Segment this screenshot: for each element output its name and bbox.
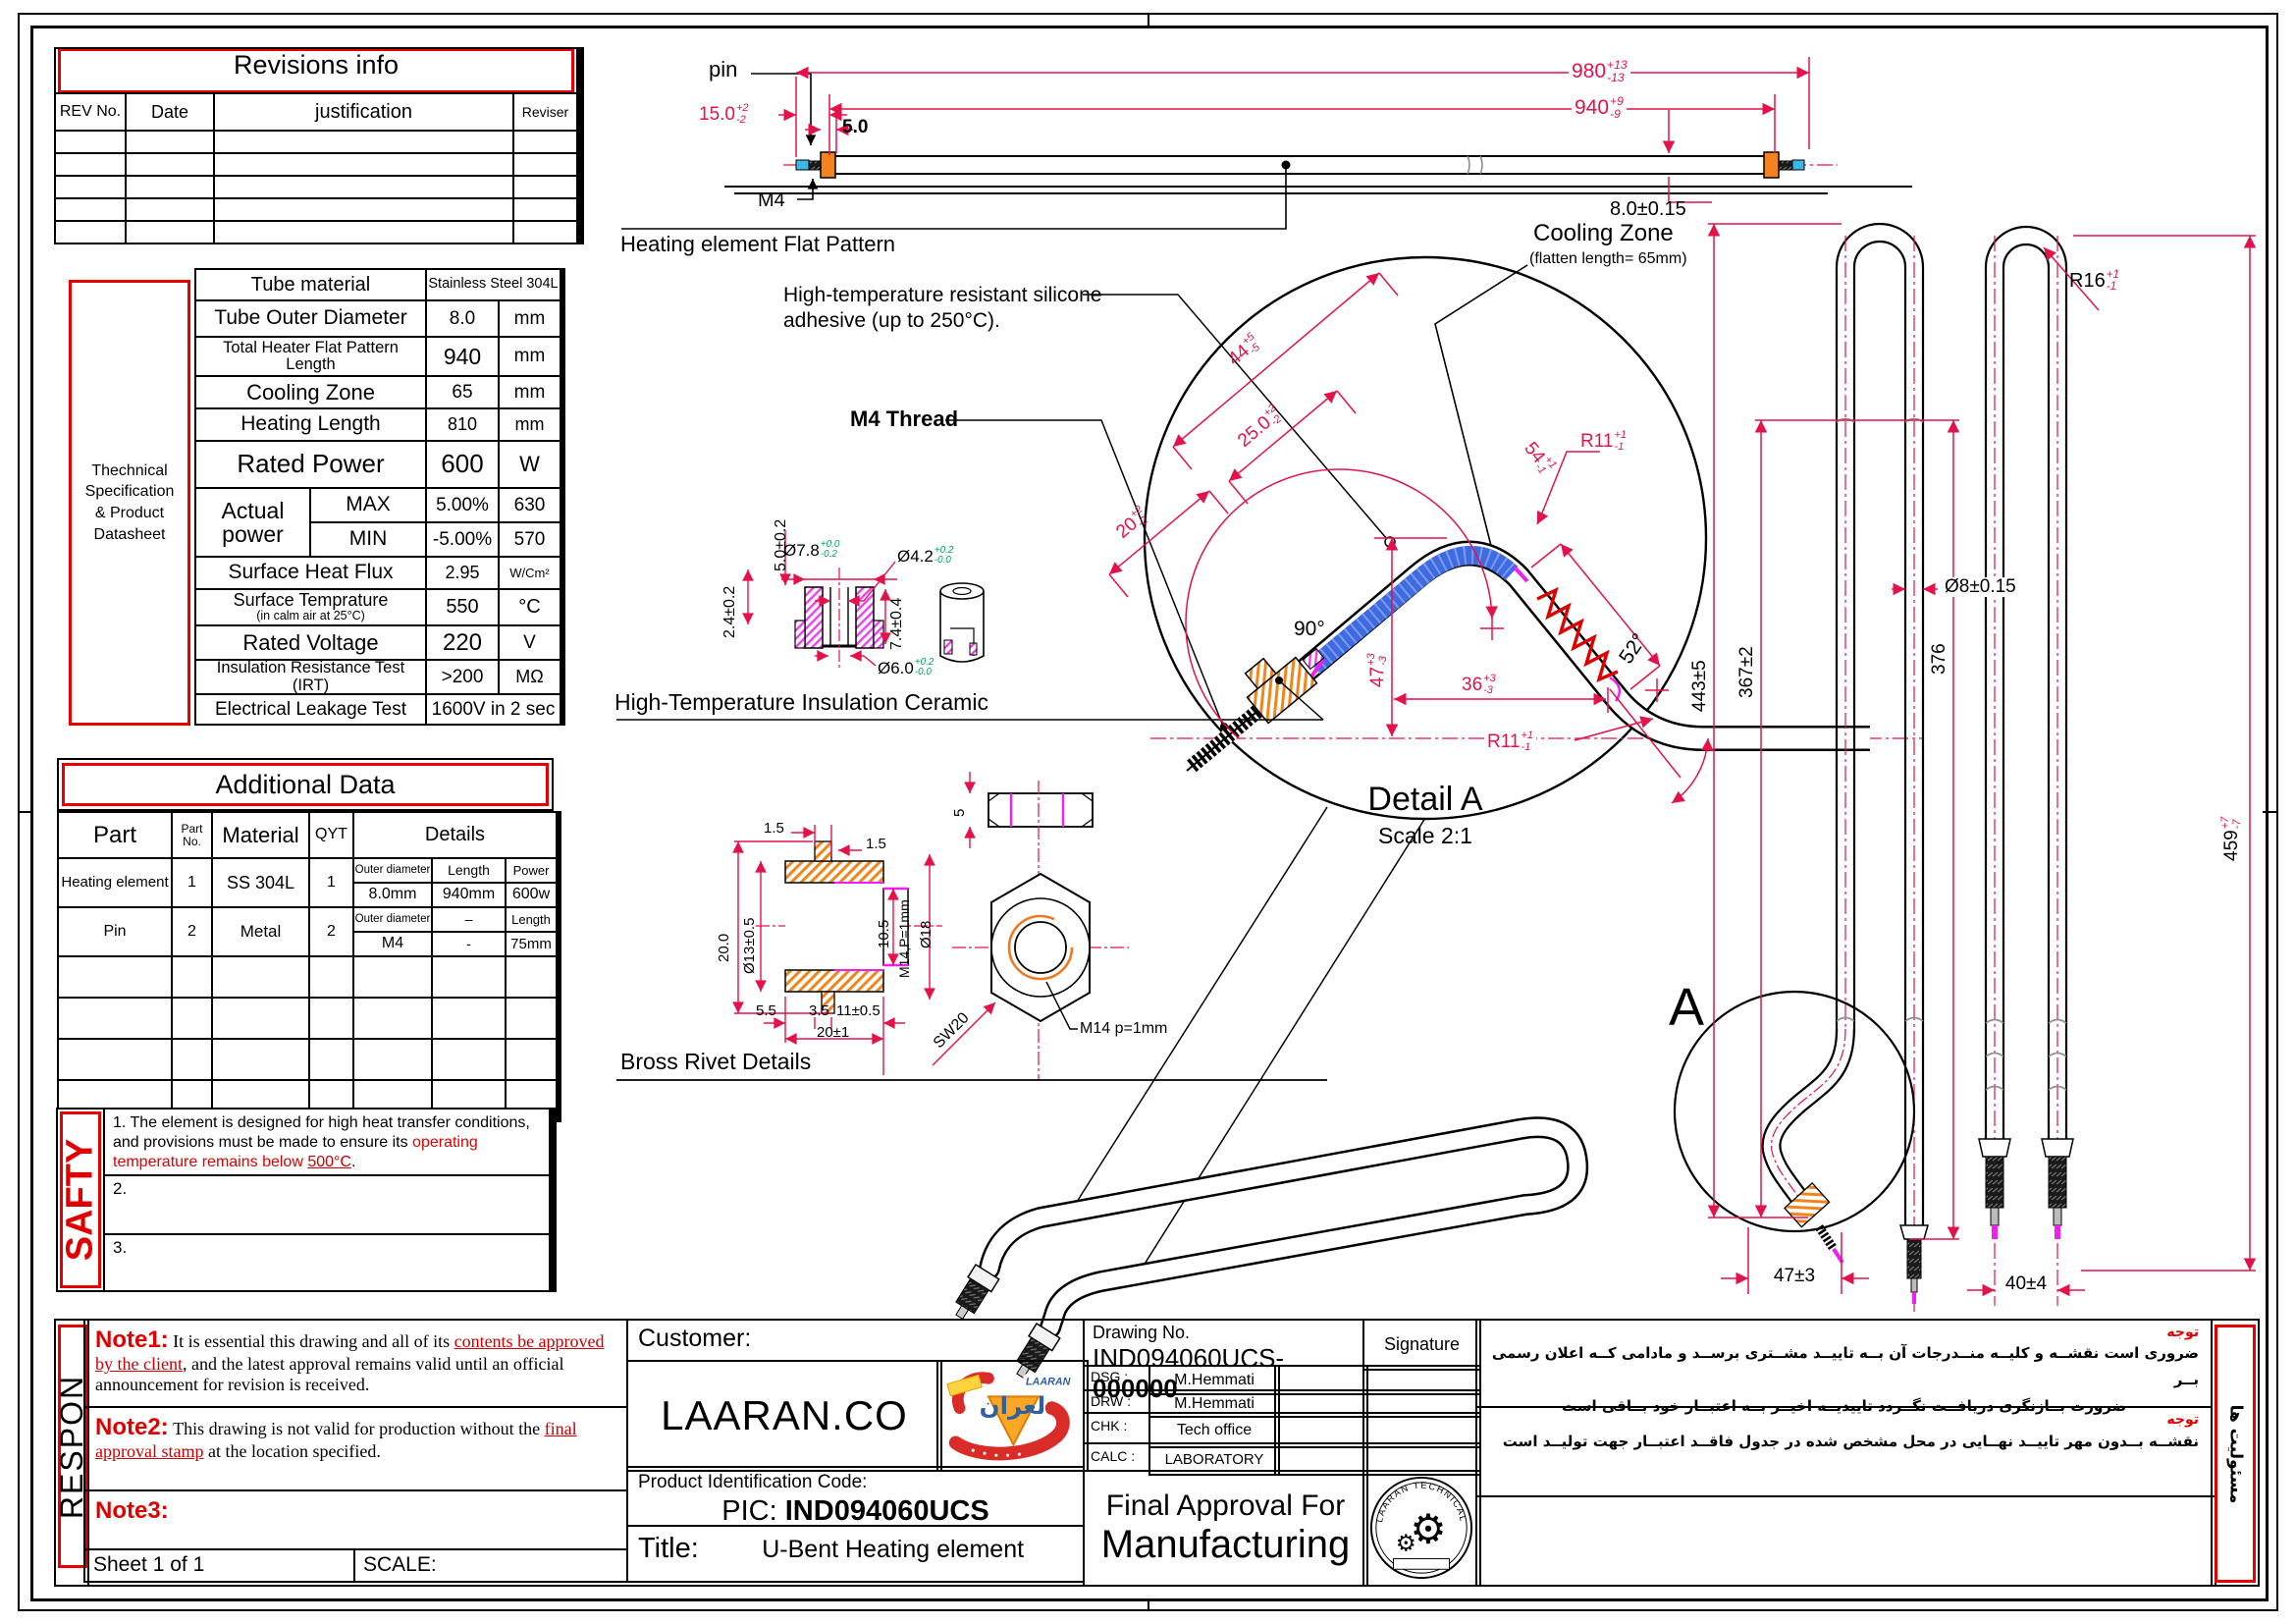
spec-label: Rated Voltage (196, 626, 425, 659)
table-cell (59, 1040, 171, 1079)
cooling-zone-sublabel: (flatten length= 65mm) (1529, 251, 1687, 268)
detail-header: Outer diameter (354, 859, 431, 882)
signature-cell: Signature (1362, 1319, 1481, 1371)
persian-note-title: توجه (1489, 1412, 2199, 1428)
table-cell (173, 957, 211, 997)
cooling-zone-label: Cooling Zone (1533, 222, 1674, 246)
table-cell (507, 957, 556, 997)
dim-5.5: 5.5 (756, 1003, 776, 1019)
dim-r11-lower: R11+1-1 (1484, 731, 1536, 753)
spec-side-line: Datasheet (85, 524, 175, 546)
revisions-col-rev: REV No. (56, 94, 125, 130)
safety-side-label: SAFTY (61, 1139, 100, 1262)
table-cell (127, 132, 213, 152)
spec-unit: W (500, 442, 560, 487)
spec-value: 600 (427, 442, 498, 487)
dim-nut-5: 5 (952, 809, 968, 817)
dim-3.5: 3.5 (809, 1003, 829, 1019)
spec-value: 220 (427, 626, 498, 659)
dim-459: 459+7-7 (2220, 814, 2243, 864)
dim-5: 5.0 (842, 118, 868, 137)
dim-980: 980+13-13 (1569, 59, 1630, 84)
additional-col-qyt: QYT (310, 813, 352, 857)
additional-table: Part Part No. Material QYT Details Heati… (57, 811, 561, 1122)
spec-side-line: Specification (85, 481, 175, 503)
spec-value: 630 (500, 489, 560, 521)
table-cell (354, 957, 431, 997)
dim-15: 15.0+2-2 (699, 103, 749, 126)
dim-7.8: Ø7.8+0.0-0.2 (783, 540, 839, 561)
detail-value: 75mm (507, 933, 556, 955)
pic-label: Product Identification Code: (638, 1472, 1073, 1493)
spec-label: Tube material (196, 270, 425, 299)
detail-header: Outer diameter (354, 908, 431, 931)
title-cell: Title: U-Bent Heating element (626, 1525, 1085, 1583)
rivet-detail-view (616, 772, 1327, 1080)
spec-label: Actual power (196, 489, 309, 556)
spec-unit: V (500, 626, 560, 659)
note3-label: Note3: (95, 1497, 169, 1524)
detail-value: - (433, 933, 505, 955)
spec-label: Surface Heat Flux (196, 558, 425, 588)
dim-20pm1: 20±1 (817, 1025, 849, 1041)
drawing-sheet: Revisions info REV No. Date justificatio… (0, 0, 2296, 1624)
part-material: SS 304L (213, 859, 308, 906)
persian-note-3 (1475, 1495, 2216, 1587)
table-cell (59, 957, 171, 997)
additional-col-no: Part No. (173, 813, 211, 857)
table-cell (173, 1040, 211, 1079)
signature-label: Signature (1384, 1334, 1460, 1355)
table-cell (127, 222, 213, 243)
table-cell (433, 1040, 505, 1079)
technical-office-stamp: LAARAN TECHNICAL OFFICE ⚙ ⚙ (1366, 1474, 1477, 1583)
dim-1.5-b: 1.5 (866, 837, 886, 852)
dim-5.0pm: 5.0±0.2 (774, 519, 790, 571)
dim-11: 11±0.5 (836, 1003, 881, 1019)
note3-cell: Note3: (83, 1489, 628, 1550)
table-cell (507, 1040, 556, 1079)
spec-label: Total Heater Flat Pattern Length (196, 338, 425, 375)
table-cell (514, 199, 576, 220)
flat-pattern-caption: Heating element Flat Pattern (620, 234, 895, 256)
table-cell (173, 999, 211, 1038)
sheet-cell: Sheet 1 of 1 (83, 1548, 355, 1583)
spec-value: 5.00% (427, 489, 498, 521)
persian-side-label: مسئولیت ها (2225, 1404, 2245, 1503)
dim-7.4: 7.4±0.4 (889, 598, 906, 650)
detail-value: 600w (507, 884, 556, 906)
orthographic-views (1675, 224, 2256, 1312)
table-cell (514, 222, 576, 243)
safety-table: SAFTY 1. The element is designed for hig… (56, 1108, 557, 1292)
detail-a-title: Detail A (1343, 783, 1508, 817)
table-cell (215, 154, 512, 175)
additional-col-details: Details (354, 813, 556, 857)
dim-10.5: 10.5 (877, 920, 892, 948)
detail-a-marker: A (1669, 980, 1704, 1035)
additional-title: Additional Data (215, 770, 395, 800)
table-cell (56, 132, 125, 152)
detail-header: Length (433, 859, 505, 882)
pic-cell: Product Identification Code: PIC: IND094… (626, 1466, 1085, 1527)
part-qty: 2 (310, 908, 352, 955)
spec-value: 810 (427, 409, 498, 440)
spec-unit: mm (500, 377, 560, 407)
spec-table: Tube material Stainless Steel 304L Tube … (194, 268, 565, 726)
persian-note-title: توجه (1489, 1325, 2199, 1340)
detail-a-scale: Scale 2:1 (1367, 825, 1483, 848)
safety-note-1: 1. The element is designed for high heat… (105, 1110, 549, 1174)
logo-cell: LAARAN لعران (936, 1360, 1089, 1472)
revisions-table: Revisions info REV No. Date justificatio… (54, 47, 584, 244)
title-value: U-Bent Heating element (762, 1536, 1024, 1563)
spec-value: 2.95 (427, 558, 498, 588)
table-cell (215, 199, 512, 220)
table-cell (310, 999, 352, 1038)
dim-r11-upper: R11+1-1 (1580, 430, 1627, 453)
dim-8: 8.0±0.15 (1610, 199, 1686, 220)
spec-unit: W/Cm² (500, 558, 560, 588)
persian-note-text: نقشــه بــدون مهر تاییــد نهــایی در محل… (1489, 1428, 2199, 1456)
detail-value: M4 (354, 933, 431, 955)
spec-value: 570 (500, 523, 560, 556)
table-cell (127, 177, 213, 197)
silicone-label-line2: adhesive (up to 250°C). (783, 310, 1000, 332)
dim-m14-p: M14,P=1mm (897, 899, 912, 978)
svg-text:لعران: لعران (980, 1391, 1046, 1420)
table-cell (56, 199, 125, 220)
spec-label: Electrical Leakage Test (196, 695, 425, 724)
note2-label: Note2: (95, 1414, 169, 1440)
role-key: CHK : (1083, 1412, 1150, 1444)
m4-thread-label: M4 Thread (850, 408, 958, 431)
svg-text:LAARAN: LAARAN (1026, 1377, 1071, 1388)
table-cell (56, 177, 125, 197)
dim-m14-nut: M14 p=1mm (1080, 1021, 1167, 1038)
dim-18: Ø18 (919, 921, 934, 948)
note1-label: Note1: (95, 1326, 169, 1353)
table-cell (213, 1040, 308, 1079)
part-no: 2 (173, 908, 211, 955)
gear-icon: ⚙ (1396, 1531, 1416, 1556)
table-cell (433, 957, 505, 997)
safety-side-cell: SAFTY (58, 1110, 103, 1290)
role-key: DRW : (1083, 1389, 1150, 1414)
spec-label: Heating Length (196, 409, 425, 440)
revisions-title: Revisions info (234, 50, 399, 80)
drawing-no-cell: Drawing No. IND094060UCS-000000 (1083, 1319, 1364, 1367)
safety-note-2: 2. (105, 1176, 549, 1233)
dim-940: 940+9-9 (1572, 95, 1627, 121)
spec-value: -5.00% (427, 523, 498, 556)
silicone-label-line1: High-temperature resistant silicone (783, 285, 1101, 306)
spec-value: 940 (427, 338, 498, 375)
role-key: DSG : (1083, 1365, 1150, 1391)
note1-text: It is essential this drawing and all of … (95, 1331, 605, 1394)
table-cell (507, 999, 556, 1038)
company-cell: LAARAN.CO (626, 1360, 942, 1472)
persian-note-2: توجه نقشــه بــدون مهر تاییــد نهــایی د… (1475, 1406, 2213, 1497)
spec-label: Tube Outer Diameter (196, 301, 425, 336)
spec-unit: MΩ (500, 661, 560, 693)
dim-443: 443±5 (1690, 657, 1710, 715)
spec-unit: mm (500, 409, 560, 440)
final-approval-line2: Manufacturing (1101, 1523, 1350, 1567)
part-no: 1 (173, 859, 211, 906)
part-name: Pin (59, 908, 171, 955)
pin-label: pin (709, 59, 737, 81)
spec-value: Stainless Steel 304L (427, 270, 560, 299)
spec-value: 1600V in 2 sec (427, 695, 560, 724)
detail-header: Power (507, 859, 556, 882)
table-cell (215, 177, 512, 197)
table-cell (213, 957, 308, 997)
dim-4.2: Ø4.2+0.2-0.0 (897, 546, 953, 567)
spec-label: MAX (311, 489, 425, 521)
spec-unit: °C (500, 590, 560, 624)
spec-label: Cooling Zone (196, 377, 425, 407)
dim-1.5-a: 1.5 (764, 821, 784, 837)
table-cell (213, 999, 308, 1038)
company-name: LAARAN.CO (661, 1392, 908, 1439)
table-cell (514, 132, 576, 152)
table-cell (127, 154, 213, 175)
table-cell (59, 999, 171, 1038)
drawing-no-label: Drawing No. (1093, 1323, 1355, 1343)
part-name: Heating element (59, 859, 171, 906)
dim-r16: R16+1-1 (2069, 269, 2119, 293)
table-cell (310, 957, 352, 997)
dim-36: 36+3-3 (1459, 674, 1499, 696)
note1-cell: Note1: It is essential this drawing and … (83, 1319, 628, 1408)
dim-376: 376 (1930, 640, 1949, 677)
dim-90deg: 90° (1294, 619, 1325, 640)
spec-side-line: & Product (85, 503, 175, 524)
table-cell (56, 222, 125, 243)
customer-cell: Customer: (626, 1319, 1085, 1362)
spec-label: Insulation Resistance Test (IRT) (196, 661, 425, 693)
dim-6.0: Ø6.0+0.2-0.0 (878, 658, 934, 678)
table-cell (215, 132, 512, 152)
note2-cell: Note2: This drawing is not valid for pro… (83, 1406, 628, 1491)
dim-367: 367±2 (1737, 643, 1757, 701)
spec-unit: mm (500, 338, 560, 375)
spec-side-line: Thechnical (85, 460, 175, 482)
dim-2.4: 2.4±0.2 (722, 586, 739, 638)
sheet-label: Sheet 1 of 1 (93, 1553, 204, 1576)
role-key: CALC : (1083, 1442, 1150, 1472)
dim-47pm3: 47±3 (1764, 1267, 1825, 1286)
spec-label: MIN (311, 523, 425, 556)
spec-value: 8.0 (427, 301, 498, 336)
revisions-title-cell: Revisions info (56, 49, 576, 92)
revisions-col-justification: justification (215, 94, 512, 130)
dim-m4: M4 (758, 190, 785, 211)
scale-cell: SCALE: (353, 1548, 628, 1583)
detail-header: – (433, 908, 505, 931)
spec-unit: mm (500, 301, 560, 336)
spec-side-box: Thechnical Specification & Product Datas… (69, 280, 190, 726)
dim-20.0: 20.0 (717, 934, 732, 962)
final-approval-line1: Final Approval For (1106, 1489, 1345, 1523)
persian-note-1: توجه ضروری است نقشــه و کلیــه منــدرجات… (1475, 1319, 2213, 1408)
final-approval-cell: Final Approval For Manufacturing (1083, 1470, 1368, 1587)
safety-note-3: 3. (105, 1235, 549, 1290)
spec-value: 65 (427, 377, 498, 407)
spec-value: >200 (427, 661, 498, 693)
detail-value: 940mm (433, 884, 505, 906)
ceramic-caption: High-Temperature Insulation Ceramic (614, 691, 988, 715)
dim-dia8: Ø8±0.15 (1942, 577, 2019, 597)
customer-label: Customer: (638, 1325, 751, 1352)
detail-header: Length (507, 908, 556, 931)
additional-col-part: Part (59, 813, 171, 857)
table-cell (127, 199, 213, 220)
table-cell (514, 154, 576, 175)
title-label: Title: (638, 1533, 699, 1564)
part-material: Metal (213, 908, 308, 955)
laaran-logo: LAARAN لعران (938, 1362, 1083, 1466)
revisions-col-reviser: Reviser (514, 94, 576, 130)
table-cell (310, 1040, 352, 1079)
table-cell (514, 177, 576, 197)
table-cell (56, 154, 125, 175)
spec-value: 550 (427, 590, 498, 624)
table-cell (215, 222, 512, 243)
dim-47: 47+3-3 (1366, 653, 1389, 687)
dim-13: Ø13±0.5 (742, 918, 758, 974)
part-qty: 1 (310, 859, 352, 906)
revisions-col-date: Date (127, 94, 213, 130)
pic-value-line: PIC: IND094060UCS (638, 1495, 1073, 1528)
additional-title-bar: Additional Data (57, 758, 554, 811)
rivet-caption: Bross Rivet Details (620, 1051, 811, 1074)
detail-value: 8.0mm (354, 884, 431, 906)
stamp-cell: LAARAN TECHNICAL OFFICE ⚙ ⚙ (1362, 1470, 1481, 1587)
table-cell (433, 999, 505, 1038)
table-cell (354, 1040, 431, 1079)
table-cell (354, 999, 431, 1038)
persian-side-box: مسئولیت ها (2215, 1325, 2256, 1583)
spec-label: Rated Power (196, 442, 425, 487)
scale-label: SCALE: (363, 1553, 437, 1576)
additional-col-material: Material (213, 813, 308, 857)
dim-40pm4: 40±4 (1996, 1274, 2056, 1294)
spec-label: Surface Temprature(in calm air at 25°C) (196, 590, 425, 624)
